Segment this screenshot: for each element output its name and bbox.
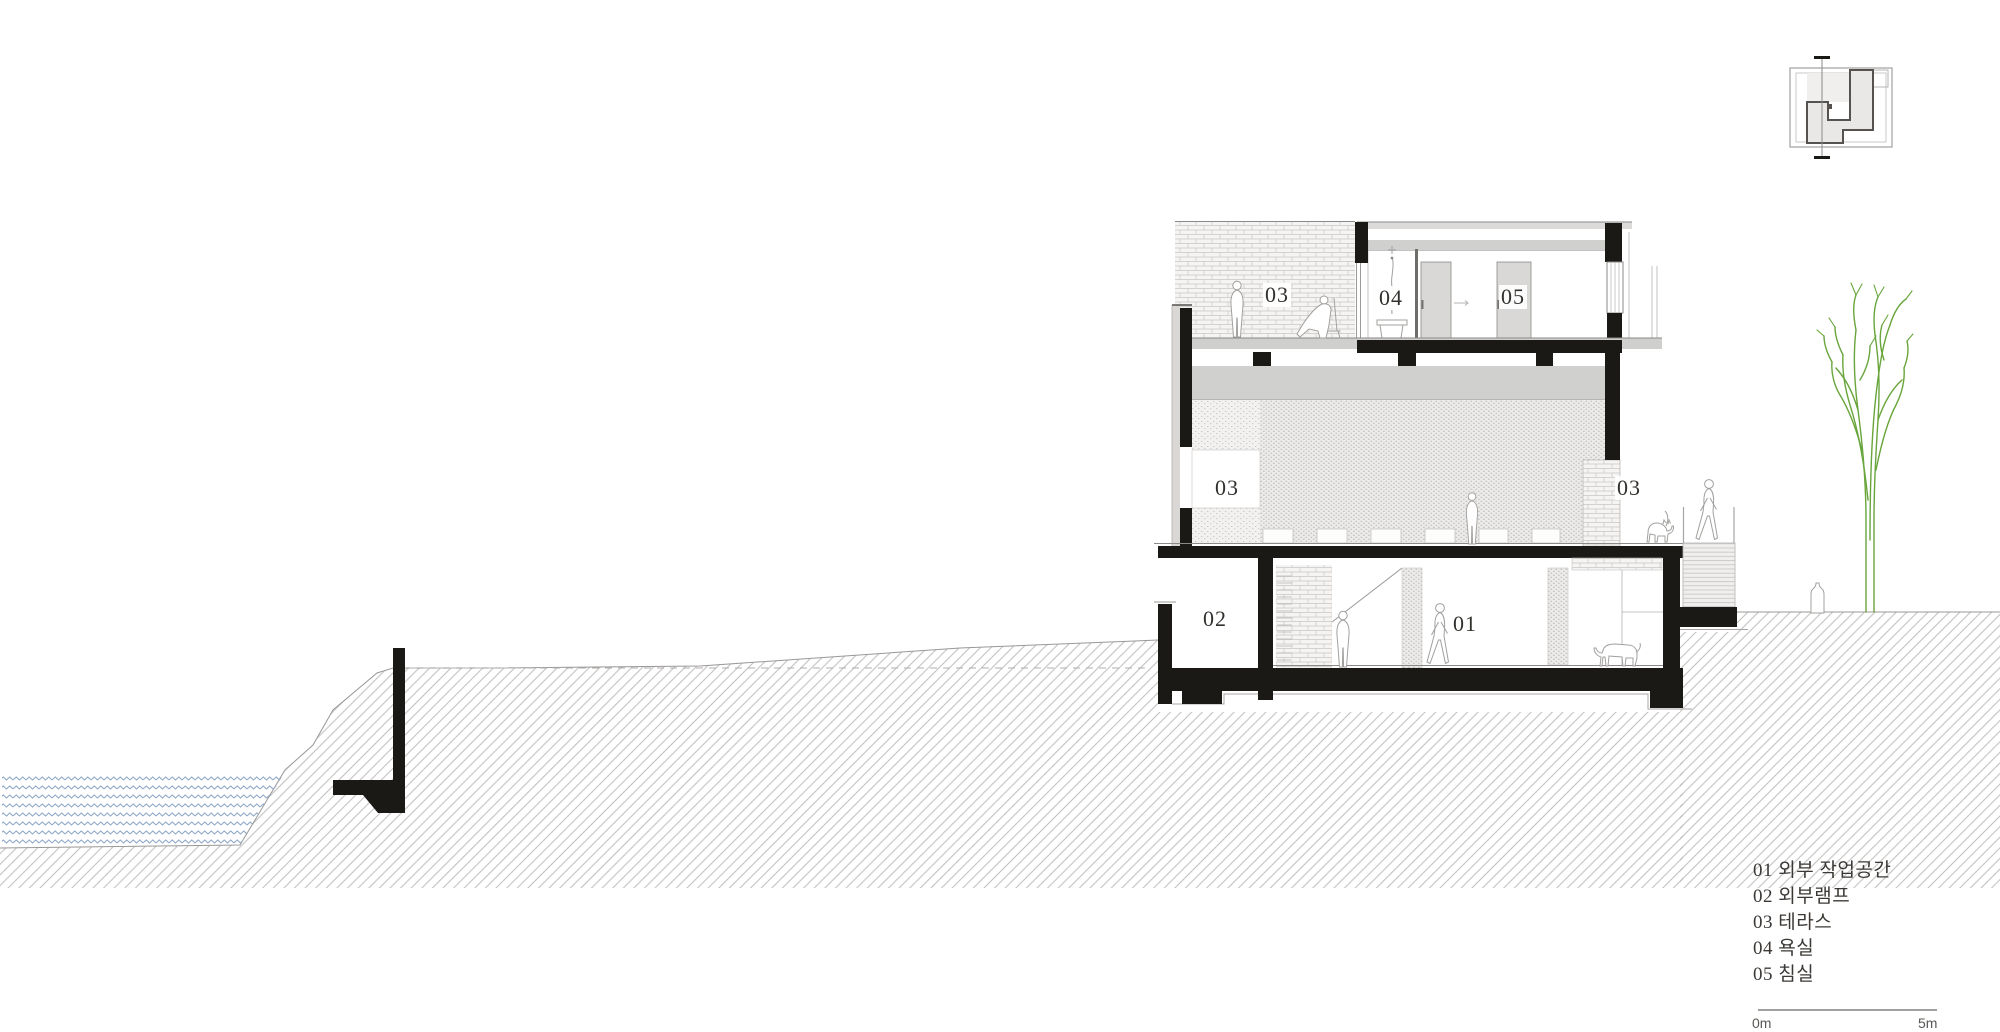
tree bbox=[1817, 283, 1913, 612]
legend-item: 05 침실 bbox=[1753, 962, 1891, 988]
ramp-retaining-wall bbox=[1158, 604, 1172, 704]
key-plan bbox=[1790, 58, 1892, 159]
scale-start-label: 0m bbox=[1752, 1016, 1771, 1030]
legend: 01 외부 작업공간 02 외부램프 03 테라스 04 욕실 05 침실 bbox=[1753, 858, 1891, 988]
bottle bbox=[1811, 583, 1824, 613]
washbasin bbox=[1377, 320, 1407, 338]
bath-bedroom-partition bbox=[1415, 249, 1418, 338]
lower-floor bbox=[1154, 553, 1683, 708]
person-walking-ramp bbox=[1696, 480, 1718, 540]
room-label-exterior-ramp: 02 bbox=[1201, 607, 1229, 631]
cat-figure bbox=[1647, 511, 1674, 542]
legend-item: 02 외부램프 bbox=[1753, 884, 1891, 910]
water bbox=[2, 772, 285, 845]
legend-item: 01 외부 작업공간 bbox=[1753, 858, 1891, 884]
room-label-terrace-mid-right: 03 bbox=[1615, 476, 1643, 500]
terrace-wall-dense bbox=[1260, 400, 1605, 543]
stair-wall bbox=[1276, 565, 1332, 668]
upper-right-wall bbox=[1605, 223, 1657, 341]
room-label-bedroom: 05 bbox=[1499, 285, 1527, 309]
room-label-terrace-upper: 03 bbox=[1263, 283, 1291, 307]
room-label-exterior-workspace: 01 bbox=[1451, 612, 1479, 636]
legend-item: 04 욕실 bbox=[1753, 936, 1891, 962]
legend-item: 03 테라스 bbox=[1753, 910, 1891, 936]
section-drawing-page: 03 04 05 03 03 02 01 01 외부 작업공간 02 외부램프 … bbox=[0, 0, 2000, 1032]
room-label-terrace-mid-left: 03 bbox=[1213, 476, 1241, 500]
upper-floor bbox=[1172, 222, 1662, 367]
drawing-linework bbox=[0, 0, 2000, 1032]
exterior-stepped-ramp bbox=[1680, 507, 1737, 627]
scale-end-label: 5m bbox=[1918, 1016, 1937, 1030]
room-label-bathroom: 04 bbox=[1377, 286, 1405, 310]
ground-hatch bbox=[0, 612, 2000, 888]
terrace-brick-parapet bbox=[1583, 460, 1620, 547]
